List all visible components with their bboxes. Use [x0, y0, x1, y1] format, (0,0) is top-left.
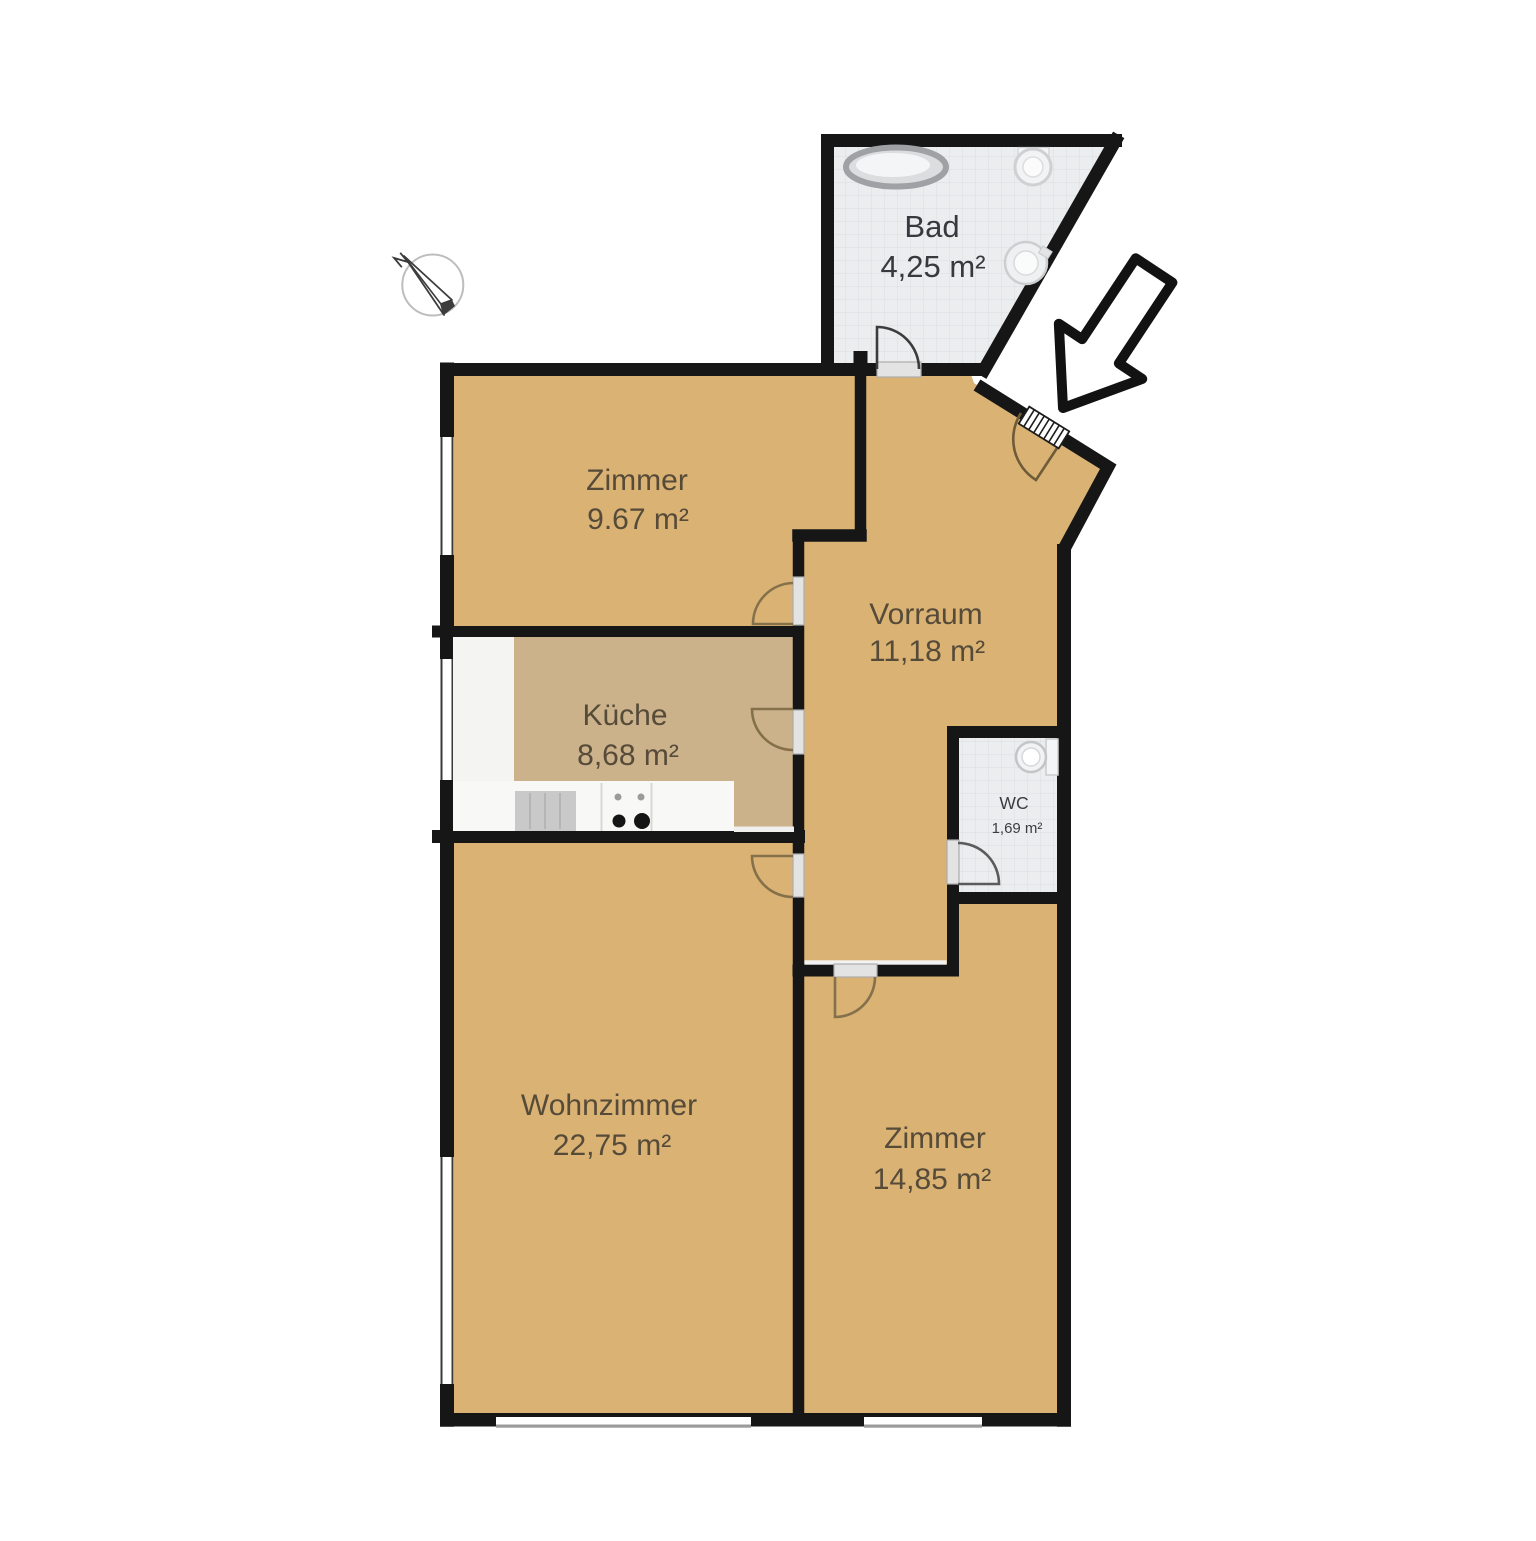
- svg-text:WC: WC: [999, 793, 1028, 813]
- svg-text:Wohnzimmer: Wohnzimmer: [521, 1089, 697, 1122]
- svg-text:1,69 m²: 1,69 m²: [992, 820, 1043, 837]
- svg-text:4,25 m²: 4,25 m²: [880, 249, 985, 284]
- svg-text:Küche: Küche: [582, 699, 667, 732]
- svg-text:8,68 m²: 8,68 m²: [577, 739, 679, 772]
- svg-text:Zimmer: Zimmer: [586, 464, 688, 497]
- svg-text:Zimmer: Zimmer: [884, 1122, 986, 1155]
- svg-text:11,18 m²: 11,18 m²: [869, 635, 985, 668]
- svg-text:14,85 m²: 14,85 m²: [873, 1163, 991, 1196]
- svg-text:22,75 m²: 22,75 m²: [553, 1129, 671, 1162]
- svg-text:9.67 m²: 9.67 m²: [587, 503, 689, 536]
- svg-text:Bad: Bad: [904, 209, 959, 244]
- svg-text:Vorraum: Vorraum: [869, 598, 982, 631]
